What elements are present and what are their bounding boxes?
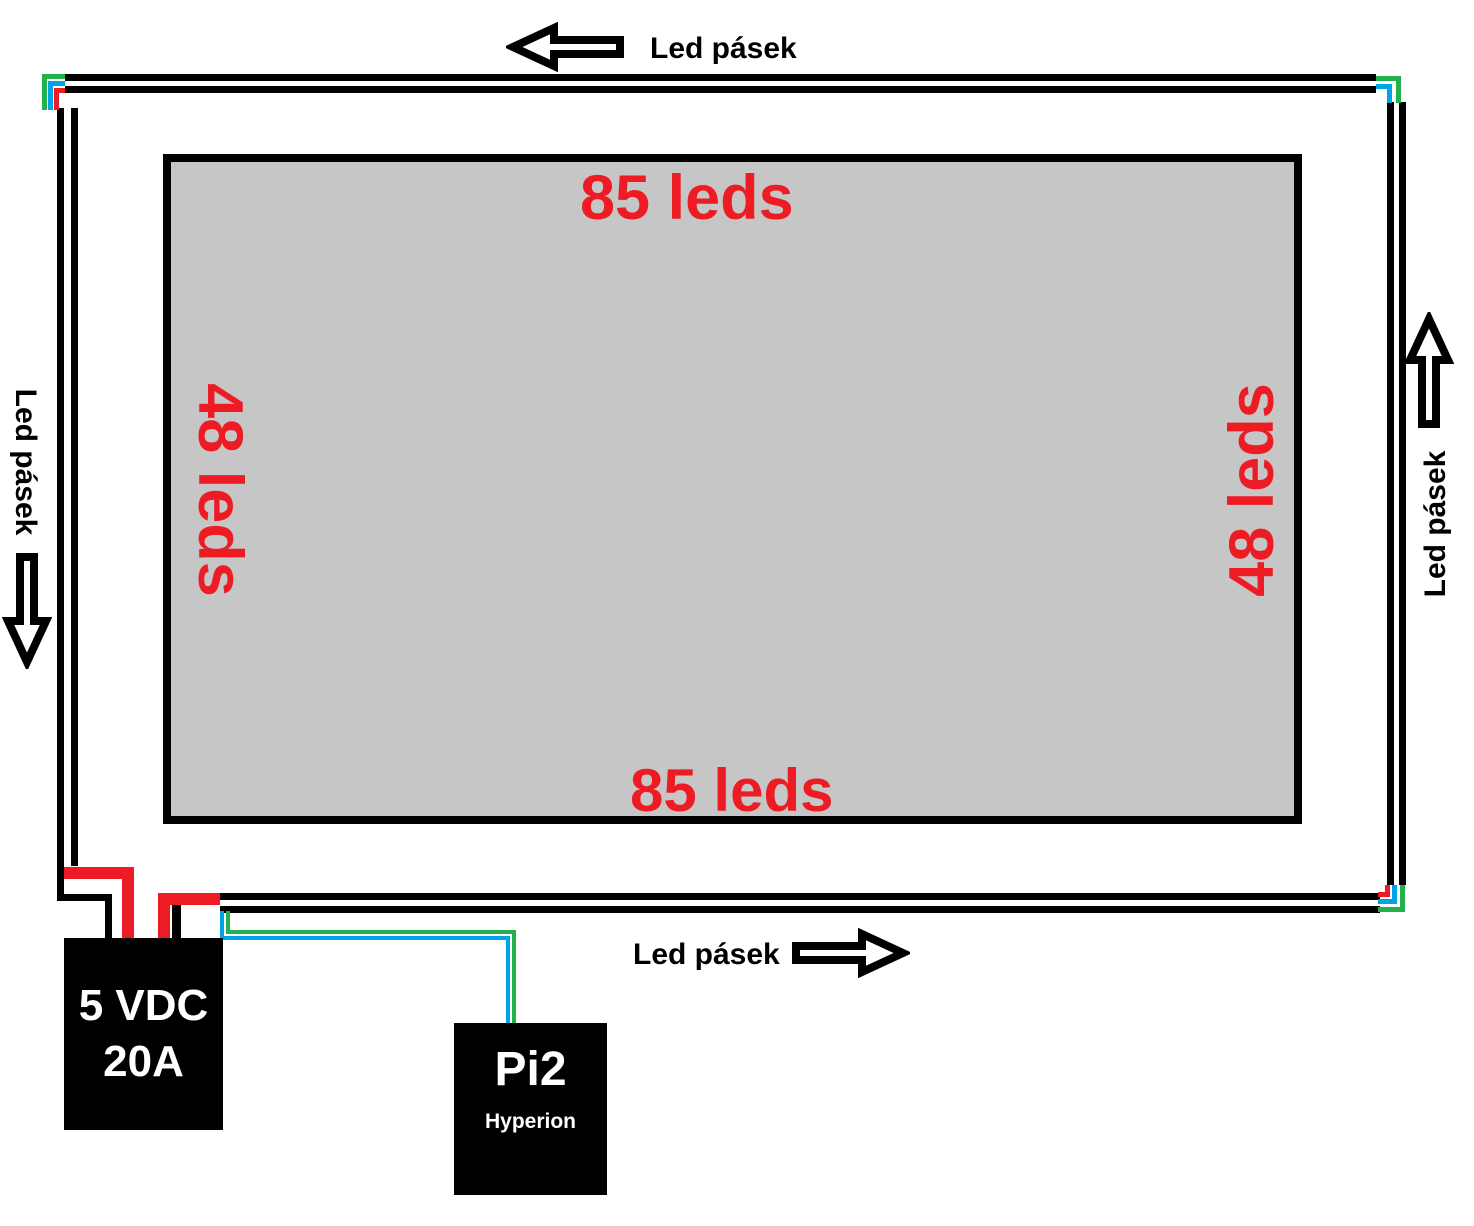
power-supply-current: 20A: [103, 1034, 184, 1090]
led-count-top: 85 leds: [580, 167, 794, 230]
led-strip-top: [65, 74, 1376, 93]
led-strip-left: [57, 108, 78, 866]
strip-label-bottom: Led pásek: [633, 940, 780, 970]
diagram-canvas: 5 VDC 20A Pi2 Hyperion 85 leds 85 leds 4…: [0, 0, 1474, 1226]
controller-name: Pi2: [494, 1046, 566, 1094]
corner-wire-topleft-red: [54, 88, 65, 110]
led-count-right: 48 leds: [1220, 370, 1284, 610]
wire-black-leftstrip-to-psu: [57, 858, 112, 901]
corner-wire-bottomright-red: [1378, 885, 1390, 897]
arrow-down-icon: [2, 551, 52, 669]
strip-label-left: Led pásek: [8, 377, 42, 547]
tv-screen: [163, 154, 1302, 824]
strip-label-top: Led pásek: [650, 34, 797, 64]
wire-red-bottomstrip-to-psu-v: [158, 893, 170, 938]
wire-red-leftstrip-to-psu-v: [122, 867, 134, 938]
power-supply-box: 5 VDC 20A: [64, 938, 223, 1130]
led-strip-bottom: [220, 893, 1380, 913]
led-count-left: 48 leds: [188, 370, 252, 610]
wire-black-leftstrip-to-psu-drop: [105, 894, 112, 938]
wire-green-strip-to-pi-drop: [512, 930, 516, 1023]
arrow-left-icon: [506, 22, 626, 72]
corner-wire-topright-blue: [1376, 84, 1392, 103]
led-count-bottom: 85 leds: [630, 761, 833, 821]
controller-software: Hyperion: [485, 1111, 576, 1132]
led-strip-right: [1387, 102, 1406, 885]
arrow-up-icon: [1404, 312, 1454, 430]
wire-blue-strip-to-pi: [220, 911, 510, 940]
wire-blue-strip-to-pi-drop: [506, 936, 510, 1023]
wire-black-bottomstrip-to-psu: [172, 905, 181, 938]
power-supply-voltage: 5 VDC: [79, 978, 209, 1034]
controller-box: Pi2 Hyperion: [454, 1023, 607, 1195]
strip-label-right: Led pásek: [1419, 439, 1453, 609]
arrow-right-icon: [790, 928, 910, 978]
